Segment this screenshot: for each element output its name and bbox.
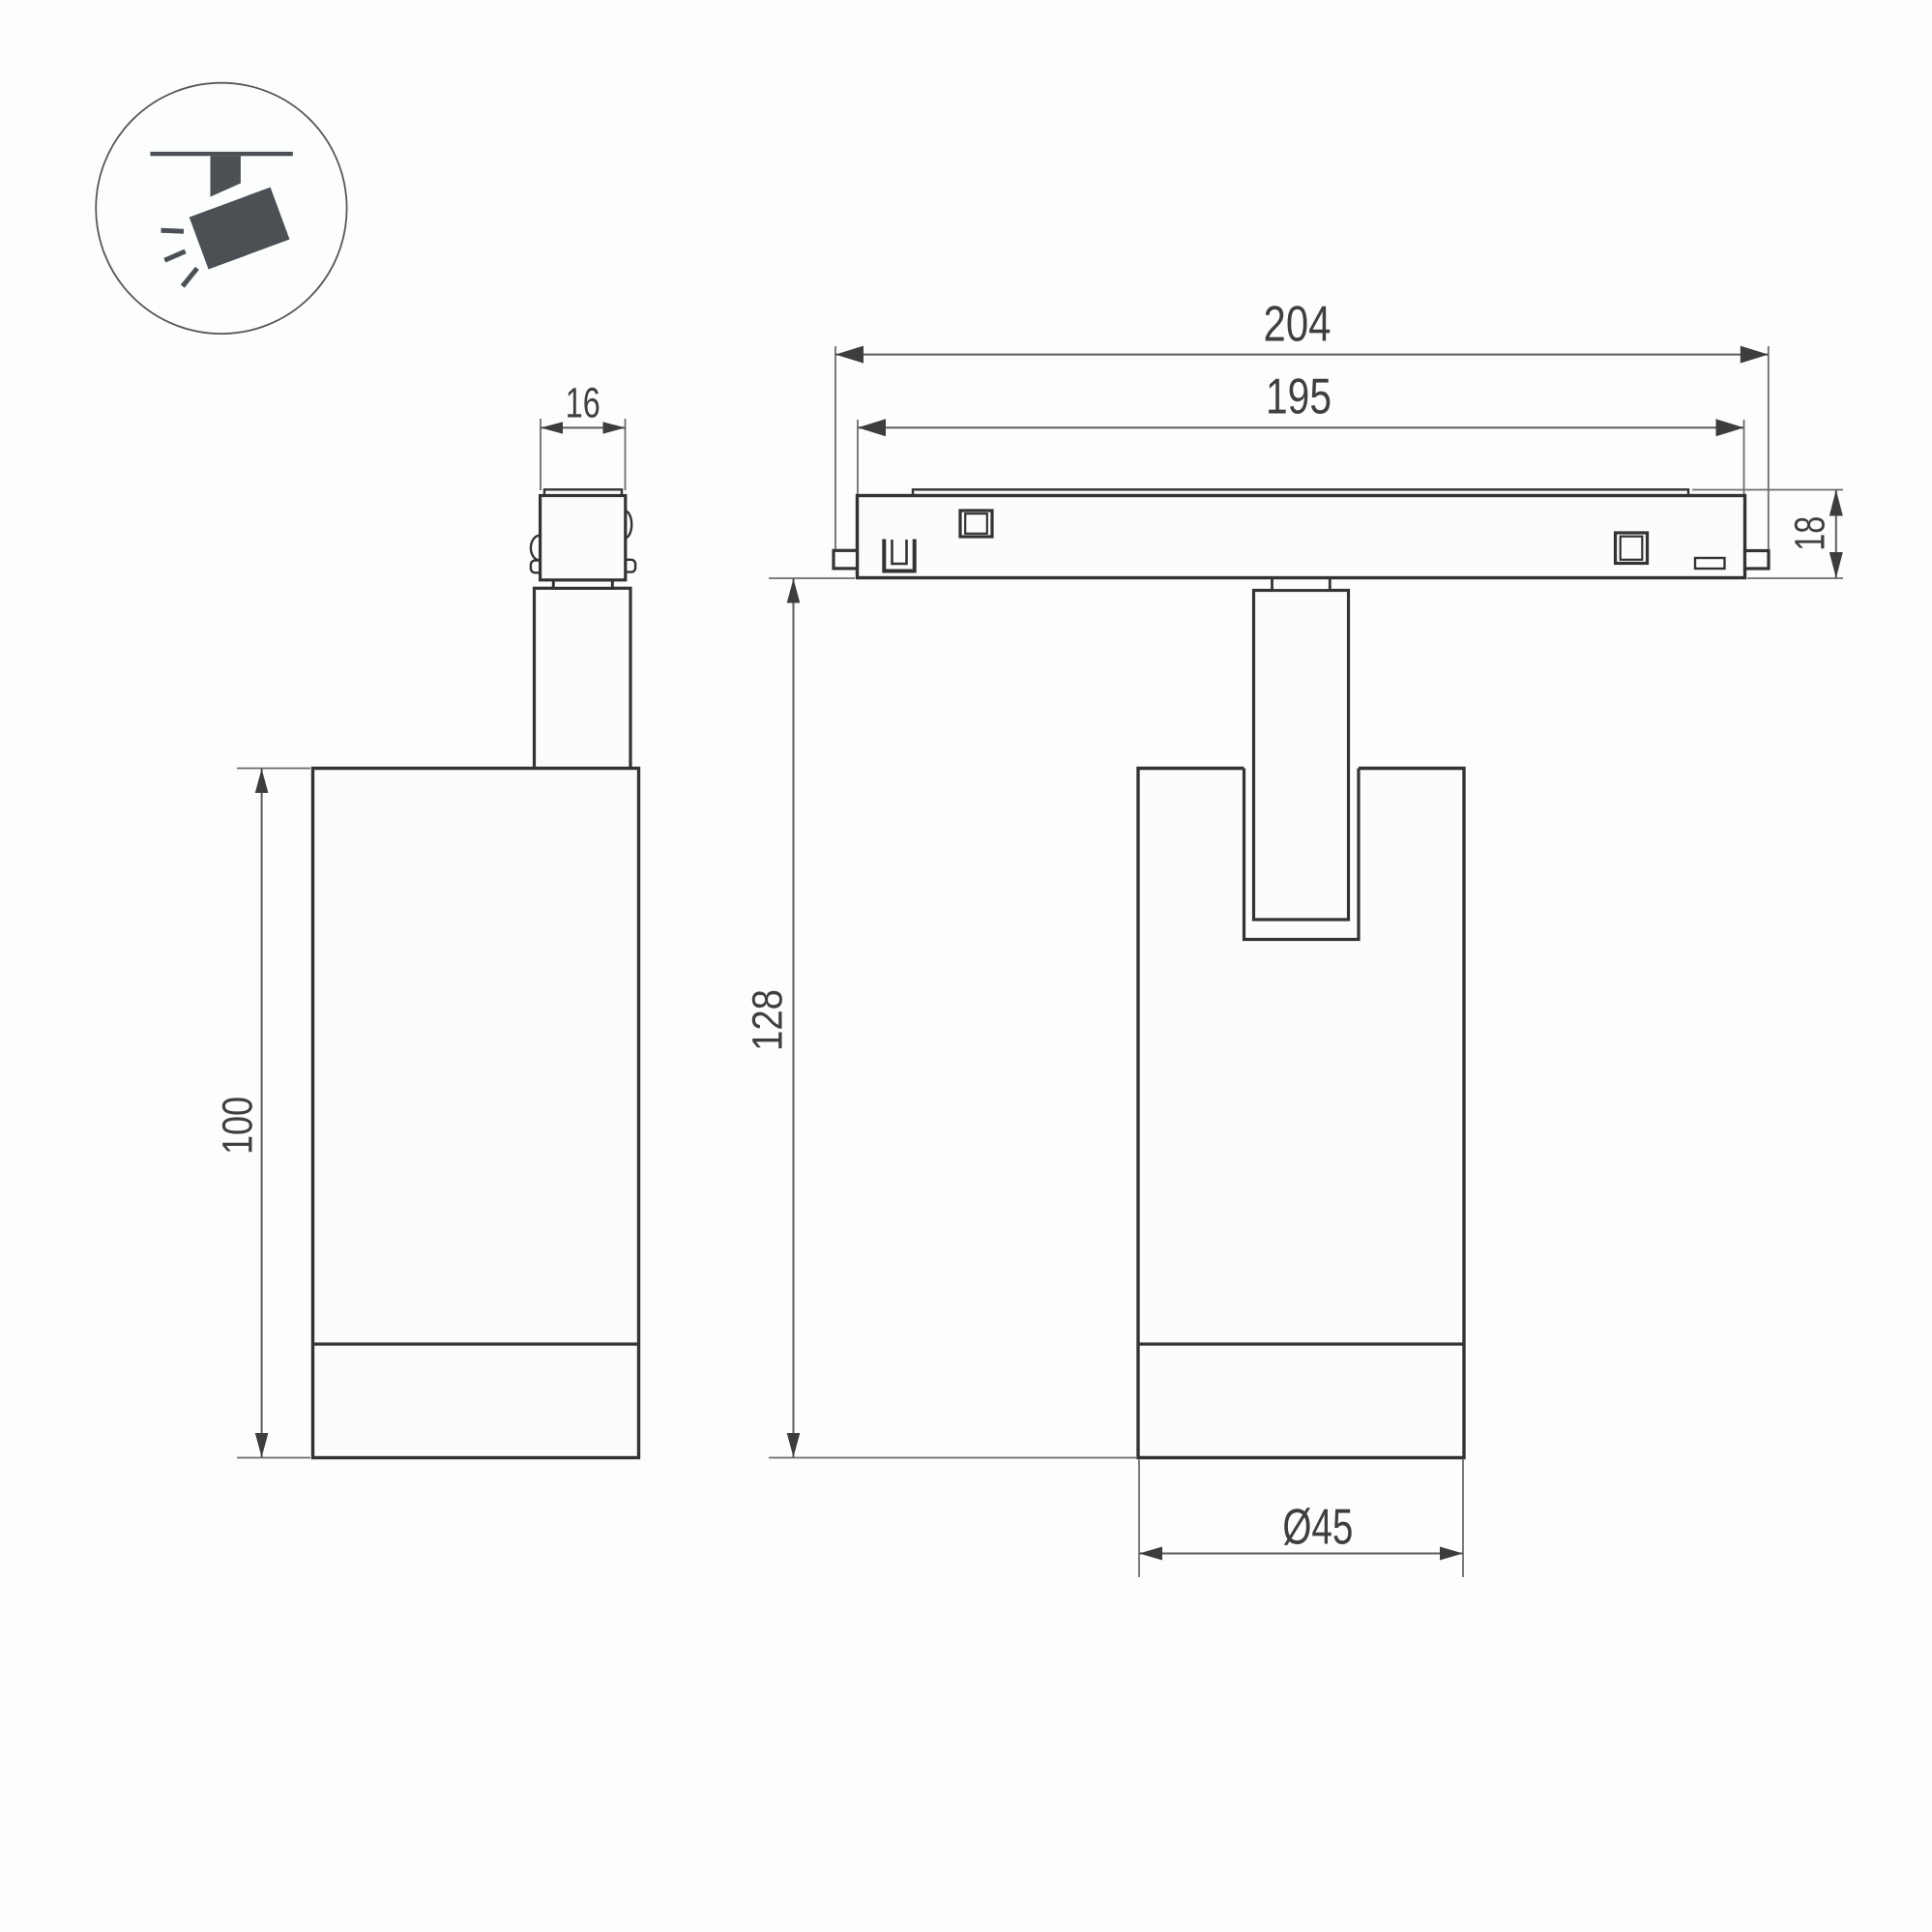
svg-text:195: 195 — [1266, 369, 1332, 425]
svg-text:100: 100 — [215, 1097, 262, 1155]
svg-text:204: 204 — [1264, 297, 1332, 353]
svg-text:Ø45: Ø45 — [1282, 1500, 1353, 1556]
svg-text:128: 128 — [745, 989, 792, 1051]
svg-text:18: 18 — [1787, 516, 1834, 551]
svg-text:16: 16 — [566, 380, 600, 427]
